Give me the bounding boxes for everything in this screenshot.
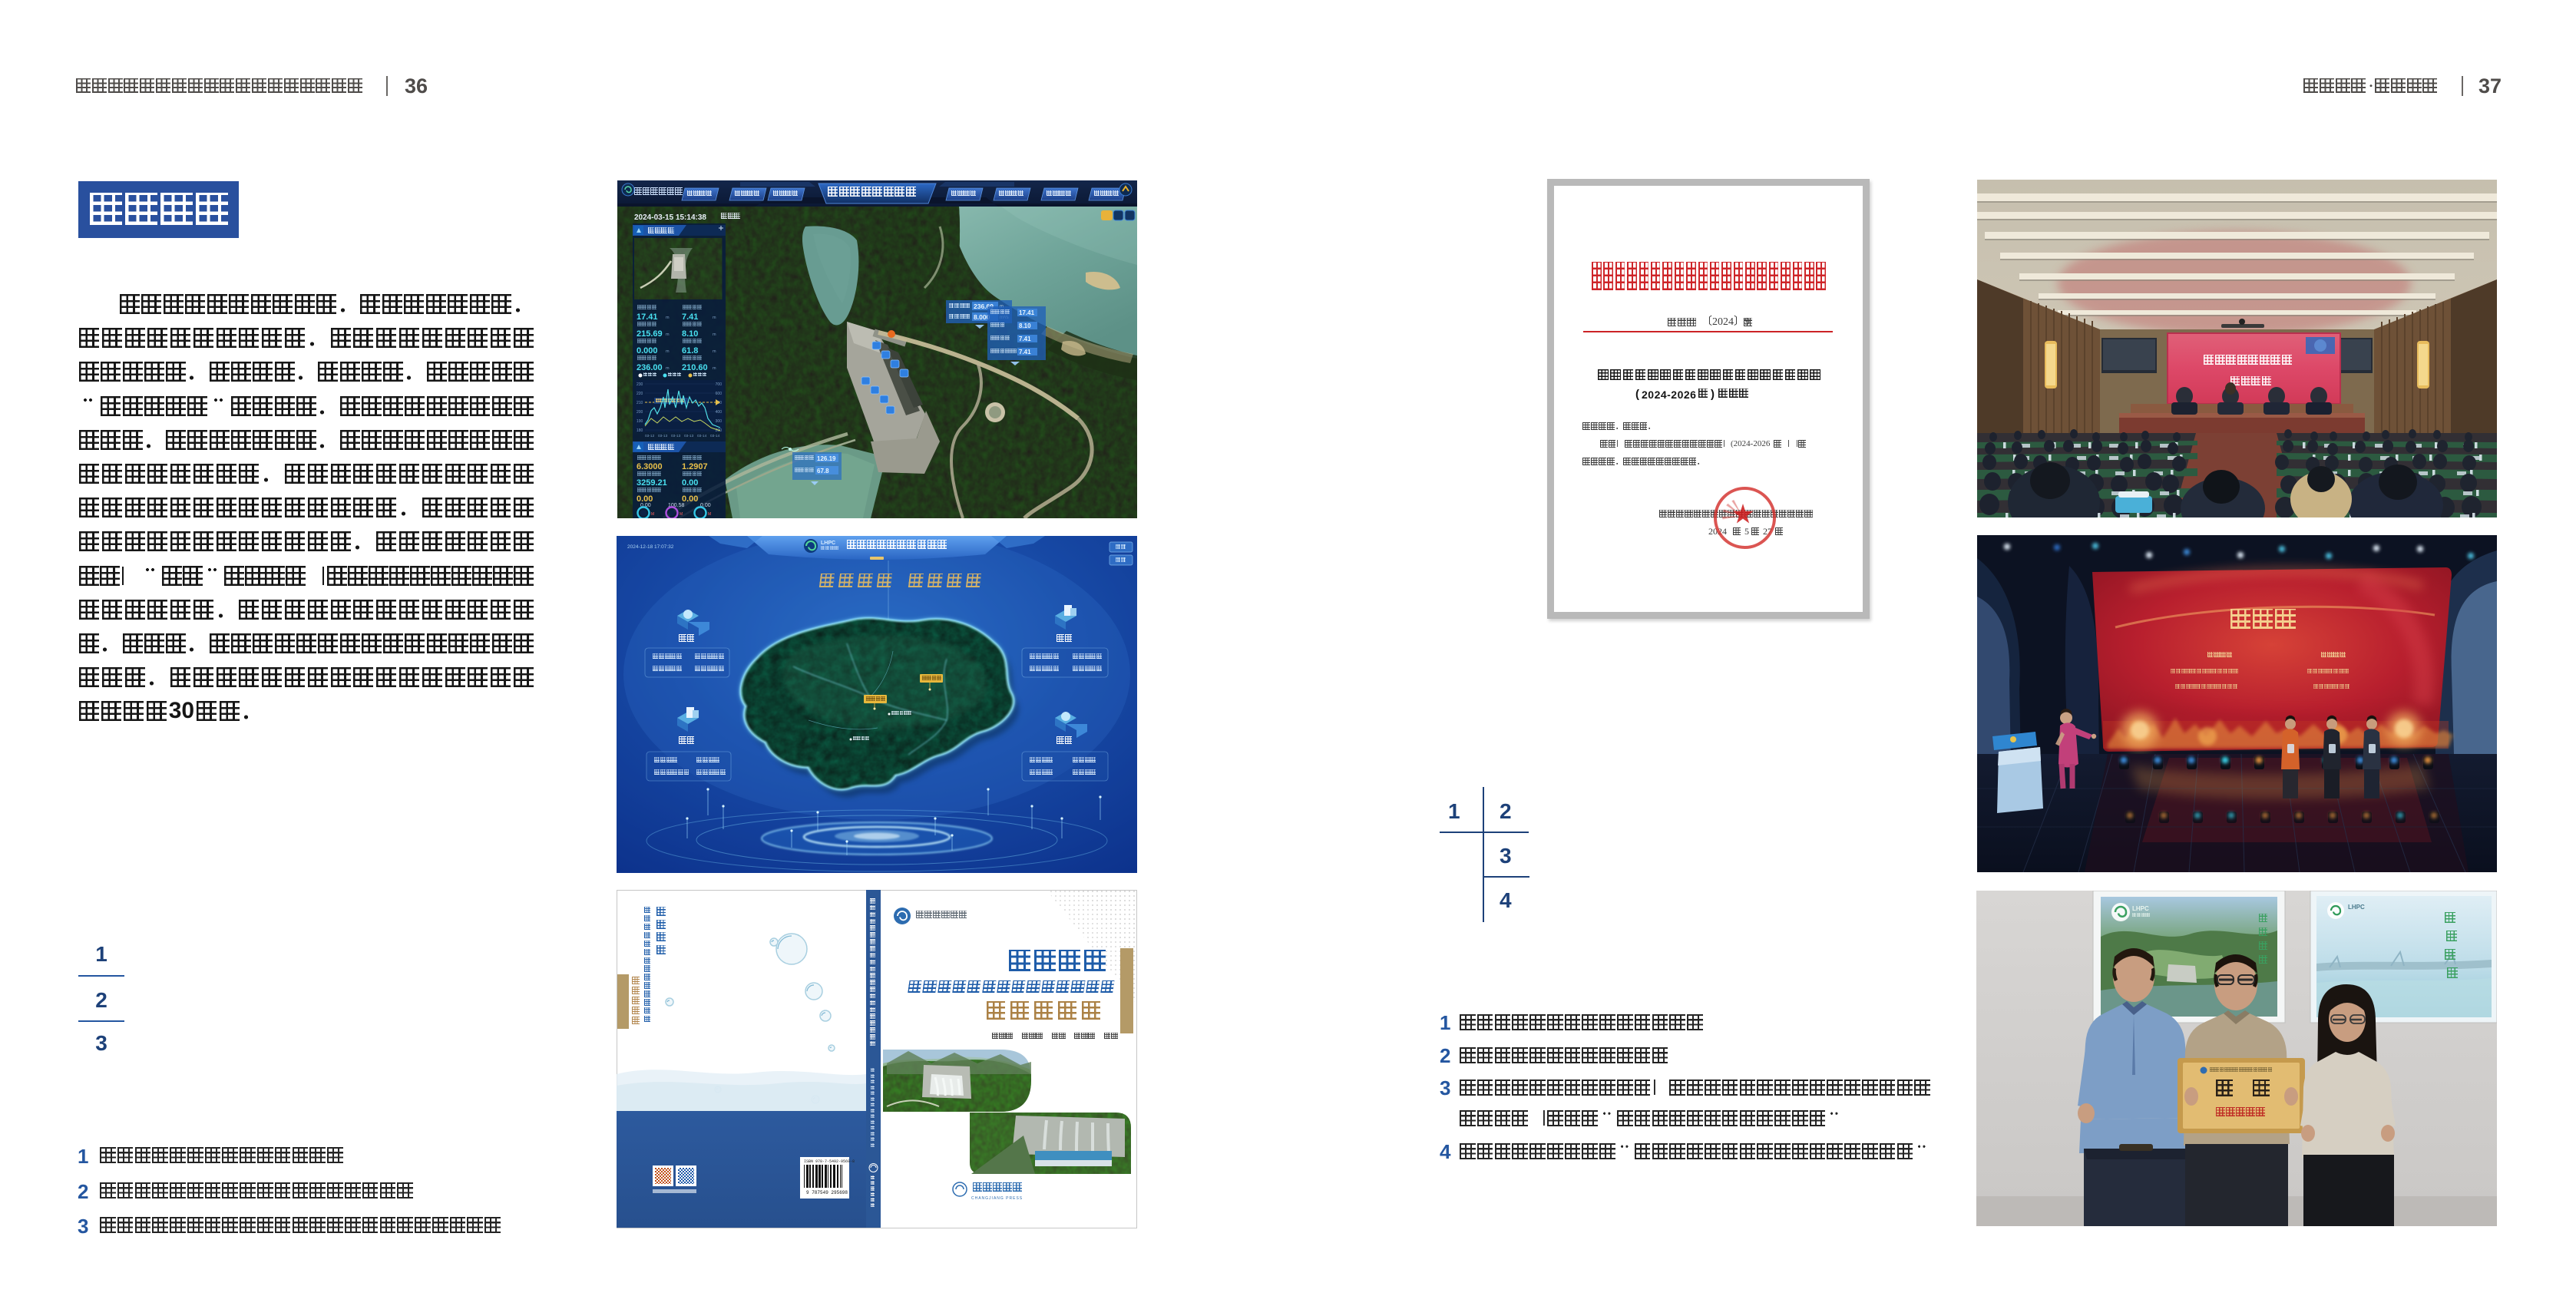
svg-text:M: M	[680, 512, 683, 517]
svg-text:m: m	[713, 366, 716, 371]
svg-text:7.41: 7.41	[1019, 336, 1031, 342]
svg-text:3259.21: 3259.21	[637, 478, 667, 488]
svg-text:M: M	[651, 512, 654, 517]
svg-text:m: m	[666, 366, 670, 371]
svg-text:67.8: 67.8	[817, 468, 829, 474]
svg-text:LHPC: LHPC	[2348, 904, 2365, 911]
svg-text:m: m	[666, 332, 670, 337]
svg-text:0.00: 0.00	[682, 478, 698, 488]
svg-text:17.41: 17.41	[637, 312, 658, 322]
svg-text:8.10: 8.10	[682, 329, 698, 339]
svg-text:03-13: 03-13	[658, 434, 668, 438]
svg-text:03-13: 03-13	[671, 434, 681, 438]
svg-text:210: 210	[637, 401, 643, 405]
svg-text:1.2907: 1.2907	[682, 462, 708, 471]
svg-text:126.19: 126.19	[817, 455, 836, 462]
svg-text:180: 180	[637, 428, 643, 433]
svg-text:600: 600	[716, 392, 723, 396]
svg-text:17.41: 17.41	[1019, 309, 1035, 316]
svg-text:m: m	[713, 316, 716, 320]
svg-text:m: m	[713, 332, 716, 337]
svg-text:190: 190	[637, 419, 643, 424]
svg-text:9 787549 295698: 9 787549 295698	[806, 1190, 848, 1195]
svg-text:M: M	[708, 512, 711, 517]
svg-text:61.8: 61.8	[682, 346, 698, 355]
svg-text:7.41: 7.41	[1019, 349, 1031, 355]
svg-text:200: 200	[637, 410, 643, 415]
svg-text:m: m	[713, 349, 716, 354]
svg-text:03-12: 03-12	[645, 434, 655, 438]
svg-text:6.3000: 6.3000	[637, 462, 663, 471]
svg-text:2024-12-18 17:07:32: 2024-12-18 17:07:32	[627, 544, 674, 550]
svg-text:230: 230	[637, 382, 643, 387]
svg-text:CHANGJIANG PRESS: CHANGJIANG PRESS	[971, 1196, 1023, 1201]
svg-text:700: 700	[716, 382, 723, 387]
svg-text:LHPC: LHPC	[2132, 905, 2149, 912]
svg-text:7.41: 7.41	[682, 312, 698, 322]
svg-text:220: 220	[637, 392, 643, 396]
svg-text:ISBN 978-7-5492-9569-8: ISBN 978-7-5492-9569-8	[804, 1159, 855, 1164]
svg-text:215.69: 215.69	[637, 329, 663, 339]
svg-text:2024-03-15 15:14:38: 2024-03-15 15:14:38	[634, 213, 706, 222]
svg-text:236.00: 236.00	[637, 363, 663, 372]
svg-text:03-14: 03-14	[697, 434, 707, 438]
svg-text:300: 300	[716, 419, 723, 424]
svg-text:8.10: 8.10	[1019, 322, 1031, 329]
svg-text:m: m	[666, 349, 670, 354]
svg-text:400: 400	[716, 410, 723, 415]
svg-text:03-14: 03-14	[710, 434, 720, 438]
svg-text:210.60: 210.60	[682, 363, 708, 372]
svg-text:03-13: 03-13	[684, 434, 694, 438]
svg-text:LHPC: LHPC	[821, 541, 835, 546]
svg-text:m: m	[666, 316, 670, 320]
svg-text:0.000: 0.000	[637, 346, 658, 355]
